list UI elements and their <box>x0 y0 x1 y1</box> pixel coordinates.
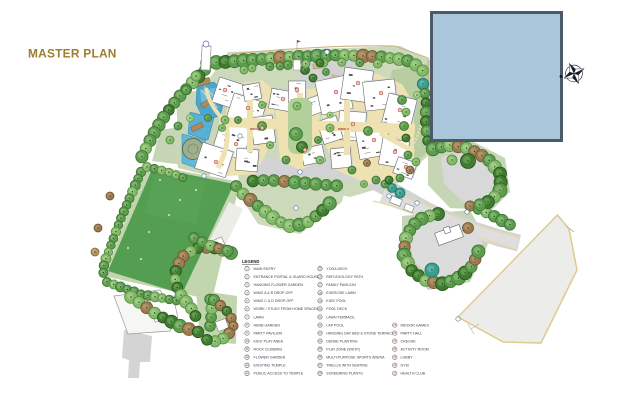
svg-text:EXERCISE LAWN: EXERCISE LAWN <box>326 291 356 295</box>
svg-text:HANGING DAY BED & STONE TERRAC: HANGING DAY BED & STONE TERRACE <box>326 331 395 335</box>
svg-text:MAIN ENTRY: MAIN ENTRY <box>254 267 277 271</box>
svg-text:HANGING FLOWER GARDEN: HANGING FLOWER GARDEN <box>254 283 304 287</box>
svg-text:INDOOR GAMES: INDOOR GAMES <box>401 323 430 327</box>
svg-text:HERB GARDEN: HERB GARDEN <box>254 323 281 327</box>
svg-text:PARTY PAVILION: PARTY PAVILION <box>254 331 283 335</box>
svg-text:WORK / STUDY FROM HOME SPACES: WORK / STUDY FROM HOME SPACES <box>254 307 320 311</box>
svg-text:PLAY ZONE (WSTP): PLAY ZONE (WSTP) <box>326 348 360 352</box>
svg-text:POOL DECK: POOL DECK <box>326 307 347 311</box>
svg-text:ACTIVITY ROOM: ACTIVITY ROOM <box>401 348 429 352</box>
svg-text:LAWN: LAWN <box>254 315 265 319</box>
svg-text:DENSE PLANTING: DENSE PLANTING <box>326 339 358 343</box>
svg-text:FAMILY PAVILION: FAMILY PAVILION <box>326 283 356 287</box>
svg-text:KIDS' PLAY AREA: KIDS' PLAY AREA <box>254 339 284 343</box>
svg-text:WING A & B DROP-OFF: WING A & B DROP-OFF <box>254 291 294 295</box>
svg-text:HEALTH CLUB: HEALTH CLUB <box>401 372 426 376</box>
svg-text:MASTER PLAN: MASTER PLAN <box>28 47 117 61</box>
svg-text:LAWN TERRACE: LAWN TERRACE <box>326 315 355 319</box>
svg-text:MULTI-PURPOSE SPORTS ARENA: MULTI-PURPOSE SPORTS ARENA <box>326 356 385 360</box>
svg-text:WING B: WING B <box>250 127 262 131</box>
svg-text:WING C & D DROP-OFF: WING C & D DROP-OFF <box>254 299 295 303</box>
svg-text:CRECHE: CRECHE <box>401 340 417 344</box>
svg-text:REFLEXOLOGY PATH: REFLEXOLOGY PATH <box>326 275 363 279</box>
svg-text:YOGA DECK: YOGA DECK <box>326 267 348 271</box>
svg-text:GYM: GYM <box>401 364 409 368</box>
svg-text:LEGEND: LEGEND <box>242 259 259 264</box>
svg-text:SCREENING PLANTS: SCREENING PLANTS <box>326 372 363 376</box>
svg-text:WING C: WING C <box>338 127 350 131</box>
svg-text:PUBLIC ACCESS TO TEMPLE: PUBLIC ACCESS TO TEMPLE <box>254 372 304 376</box>
svg-text:ROCK CLIMBING: ROCK CLIMBING <box>254 348 283 352</box>
svg-text:PARTY HALL: PARTY HALL <box>401 331 423 335</box>
svg-text:TRELLIS WITH SEATING: TRELLIS WITH SEATING <box>326 364 367 368</box>
svg-text:LOBBY: LOBBY <box>401 356 414 360</box>
svg-text:KIDS' POOL: KIDS' POOL <box>326 299 346 303</box>
svg-text:FLOWER GARDEN: FLOWER GARDEN <box>254 356 286 360</box>
svg-text:ENTRANCE PORTAL & GUARD HOUSE: ENTRANCE PORTAL & GUARD HOUSE <box>254 275 320 279</box>
svg-text:EXISTING TEMPLE: EXISTING TEMPLE <box>254 364 287 368</box>
svg-text:LAP POOL: LAP POOL <box>326 323 344 327</box>
